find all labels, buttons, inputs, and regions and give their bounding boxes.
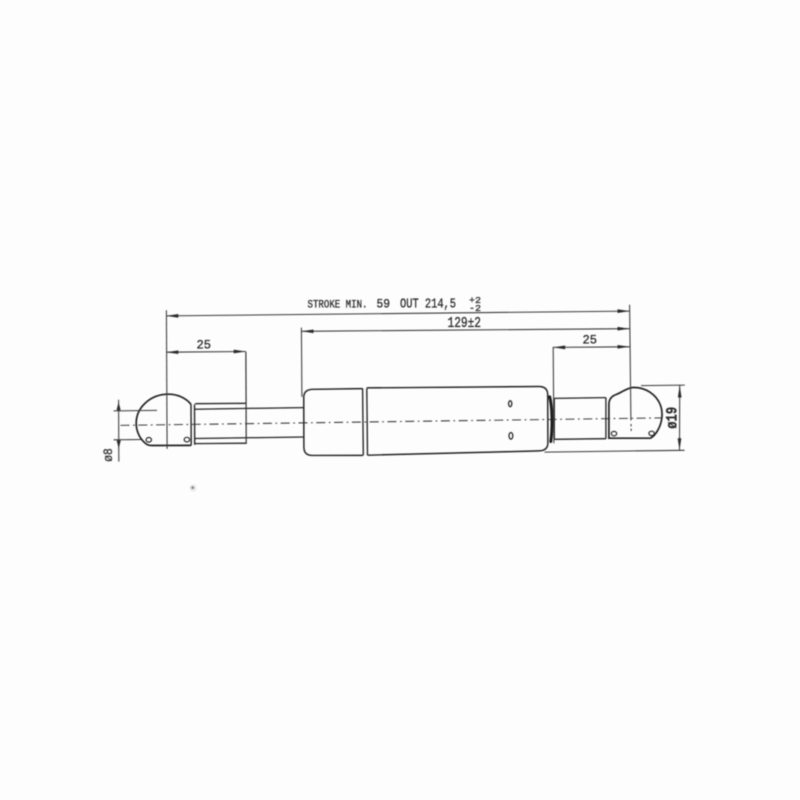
svg-text:-2: -2 (469, 303, 481, 314)
svg-text:ø8: ø8 (102, 448, 116, 462)
svg-text:129±2: 129±2 (448, 316, 482, 332)
svg-text:STROKE MIN.: STROKE MIN. (308, 299, 368, 311)
svg-text:ø19: ø19 (663, 407, 681, 429)
svg-text:59: 59 (377, 296, 391, 311)
svg-text:OUT 214,5: OUT 214,5 (400, 298, 456, 313)
svg-text:25: 25 (583, 332, 598, 347)
svg-text:25: 25 (197, 338, 212, 353)
